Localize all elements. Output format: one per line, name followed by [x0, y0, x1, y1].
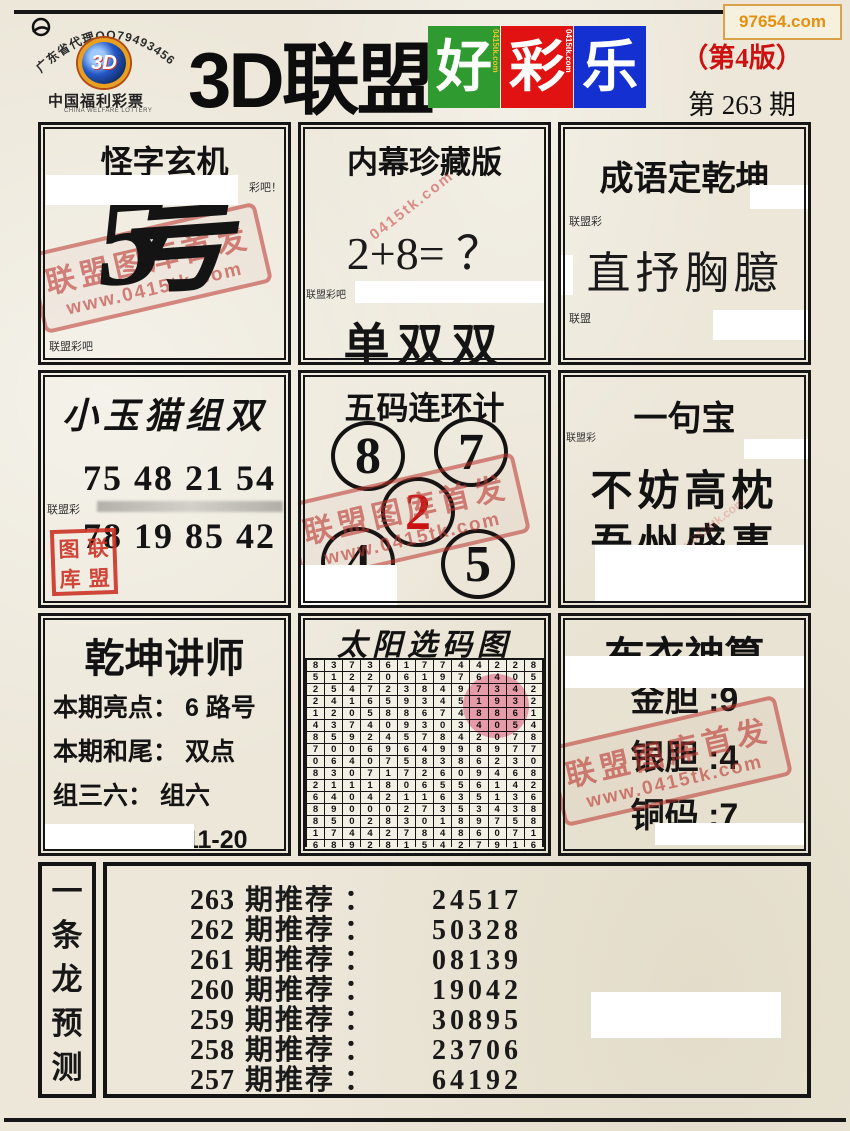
grid-digit: 5 — [398, 732, 415, 743]
grid-digit: 8 — [452, 756, 469, 767]
grid-digit: 8 — [325, 840, 342, 851]
grid-digit: 3 — [325, 852, 342, 856]
grid-digit: 7 — [416, 732, 433, 743]
panel-title: 乾坤讲师 — [41, 626, 288, 684]
grid-digit: 0 — [361, 756, 378, 767]
equation-text: 2+8= ？ — [301, 217, 548, 283]
answer-text: 单双双 — [301, 309, 548, 365]
grid-digit: 7 — [398, 828, 415, 839]
panel-buyi-oracle: 布衣神算 金胆 :9银胆 :4铜码 :7 联盟图库首发 www.0415tk.c… — [558, 613, 811, 856]
vertical-label-char: 测 — [52, 1046, 83, 1090]
dragon-vertical-label: 一条龙预测 — [38, 862, 96, 1098]
grid-digit: 3 — [452, 792, 469, 803]
vertical-label-char: 一 — [52, 870, 83, 914]
grid-digit: 6 — [470, 780, 487, 791]
lottery-name-en: CHINA WELFARE LOTTERY — [64, 108, 152, 114]
grid-digit: 9 — [489, 744, 506, 755]
panel-title: 内幕珍藏版 — [301, 137, 548, 182]
grid-digit: 4 — [525, 720, 542, 731]
grid-digit: 0 — [307, 756, 324, 767]
grid-digit: 1 — [398, 792, 415, 803]
grid-digit: 6 — [525, 792, 542, 803]
grid-digit: 0 — [489, 828, 506, 839]
panel-one-phrase: 一句宝 联盟彩 不妨高枕 吾州盛事 www.0415tk.com — [558, 370, 811, 608]
grid-digit: 8 — [416, 756, 433, 767]
grid-digit: 1 — [434, 816, 451, 827]
grid-digit: 8 — [525, 816, 542, 827]
grid-digit: 2 — [452, 840, 469, 851]
censor-patch — [355, 281, 544, 303]
grid-digit: 4 — [470, 852, 487, 856]
grid-digit: 6 — [434, 792, 451, 803]
grid-digit: 1 — [325, 672, 342, 683]
grid-digit: 2 — [307, 684, 324, 695]
grid-digit: 7 — [361, 684, 378, 695]
grid-digit: 0 — [525, 756, 542, 767]
grid-digit: 1 — [489, 780, 506, 791]
grid-digit: 2 — [307, 780, 324, 791]
grid-digit: 2 — [307, 696, 324, 707]
grid-digit: 1 — [380, 768, 397, 779]
grid-digit: 5 — [307, 672, 324, 683]
censor-patch — [564, 656, 805, 688]
grid-digit: 4 — [452, 852, 469, 856]
grid-digit: 4 — [452, 732, 469, 743]
union-library-seal: 图联库盟 — [50, 528, 118, 596]
grid-digit: 8 — [525, 804, 542, 815]
grid-digit: 1 — [343, 696, 360, 707]
panel-mystery-character: 怪字玄机 彩吧！ 联盟图库首发 www.0415tk.com 5号 联盟彩吧 — [38, 122, 291, 365]
grid-digit: 2 — [325, 708, 342, 719]
grid-digit: 2 — [380, 684, 397, 695]
grid-digit: 0 — [380, 672, 397, 683]
grid-digit: 8 — [307, 804, 324, 815]
brand-color-blocks: 好0415tk.com彩0415tk.com乐 — [428, 26, 647, 108]
vertical-label-char: 条 — [52, 914, 83, 958]
grid-digit: 5 — [380, 696, 397, 707]
grid-digit: 2 — [361, 672, 378, 683]
grid-digit: 8 — [380, 816, 397, 827]
grid-digit: 6 — [470, 756, 487, 767]
grid-digit: 6 — [361, 744, 378, 755]
censor-patch — [46, 175, 238, 205]
grid-digit: 8 — [452, 816, 469, 827]
censor-patch — [750, 185, 808, 209]
grid-digit: 8 — [307, 852, 324, 856]
panel-lecturer: 乾坤讲师 本期亮点： 6 路号本期和尾： 双点组三六： 组六点数范围： 11-2… — [38, 613, 291, 856]
side-note: 联盟彩 — [569, 213, 602, 229]
grid-digit: 7 — [416, 660, 433, 671]
grid-digit: 4 — [434, 696, 451, 707]
grid-digit: 6 — [416, 780, 433, 791]
grid-digit: 4 — [470, 660, 487, 671]
grid-digit: 4 — [416, 744, 433, 755]
censor-patch — [655, 823, 805, 845]
grid-digit: 3 — [507, 792, 524, 803]
grid-digit: 0 — [343, 804, 360, 815]
censor-patch — [595, 545, 806, 601]
censor-patch — [591, 992, 781, 1038]
grid-digit: 0 — [416, 816, 433, 827]
grid-digit: 6 — [380, 852, 397, 856]
tip-line: 本期和尾： 双点 — [53, 732, 235, 768]
grid-digit: 0 — [380, 804, 397, 815]
grid-digit: 4 — [307, 720, 324, 731]
panel-title: 五码连环计 — [301, 383, 548, 429]
grid-digit: 7 — [361, 768, 378, 779]
grid-digit: 2 — [343, 672, 360, 683]
grid-digit: 8 — [307, 768, 324, 779]
grid-digit: 4 — [380, 732, 397, 743]
grid-digit: 9 — [325, 804, 342, 815]
grid-digit: 1 — [343, 780, 360, 791]
grid-digit: 3 — [434, 756, 451, 767]
grid-digit: 7 — [434, 708, 451, 719]
grid-digit: 7 — [380, 756, 397, 767]
grid-digit: 7 — [343, 660, 360, 671]
grid-digit: 4 — [325, 696, 342, 707]
grid-digit: 7 — [325, 828, 342, 839]
grid-digit: 7 — [307, 744, 324, 755]
grid-digit: 1 — [416, 792, 433, 803]
grid-digit: 9 — [434, 744, 451, 755]
grid-digit: 4 — [434, 684, 451, 695]
grid-digit: 7 — [343, 852, 360, 856]
grid-digit: 7 — [489, 816, 506, 827]
grid-digit: 6 — [398, 744, 415, 755]
grid-digit: 0 — [343, 708, 360, 719]
grid-digit: 8 — [416, 828, 433, 839]
grid-digit: 2 — [507, 852, 524, 856]
grid-digit: 0 — [434, 720, 451, 731]
grid-digit: 7 — [343, 720, 360, 731]
grid-digit: 5 — [452, 804, 469, 815]
page-frame-bottom — [4, 1118, 846, 1122]
blurred-strip — [97, 501, 283, 512]
grid-digit: 7 — [470, 840, 487, 851]
grid-digit: 3 — [361, 660, 378, 671]
grid-digit: 6 — [398, 672, 415, 683]
grid-digit: 3 — [325, 660, 342, 671]
grid-digit: 8 — [470, 744, 487, 755]
dragon-list: 263期推荐 ：24517262期推荐 ：50328261期推荐 ：081392… — [103, 862, 811, 1098]
lottery-3d-ball-icon: 3D — [78, 38, 130, 88]
lottery-tip-sheet: 97654.com 广东省代理QQ79493456 3D 中国福利彩票 CHIN… — [0, 0, 850, 1131]
grid-digit: 4 — [343, 828, 360, 839]
grid-digit: 4 — [452, 660, 469, 671]
brand-block: 彩0415tk.com — [501, 26, 573, 108]
grid-digit: 8 — [452, 828, 469, 839]
grid-digit: 2 — [489, 756, 506, 767]
grid-digit: 3 — [398, 816, 415, 827]
grid-digit: 1 — [416, 672, 433, 683]
grid-digit: 3 — [416, 720, 433, 731]
grid-digit: 6 — [507, 768, 524, 779]
grid-digit: 6 — [361, 696, 378, 707]
grid-digit: 7 — [452, 672, 469, 683]
panel-five-code-rings: 五码连环计 87245 联盟图库首发 www.0415tk.com — [298, 370, 551, 608]
grid-digit: 7 — [398, 768, 415, 779]
dragon-rows: 263期推荐 ：24517262期推荐 ：50328261期推荐 ：081392… — [173, 878, 807, 1088]
grid-digit: 8 — [380, 840, 397, 851]
vertical-label-char: 龙 — [52, 958, 83, 1002]
grid-digit: 4 — [507, 780, 524, 791]
grid-digit: 0 — [343, 768, 360, 779]
footer-note: 联盟 — [569, 310, 591, 326]
grid-digit: 1 — [507, 840, 524, 851]
grid-digit: 2 — [380, 792, 397, 803]
grid-digit: 1 — [398, 660, 415, 671]
main-title: 3D联盟 — [188, 18, 432, 130]
grid-digit: 3 — [507, 804, 524, 815]
grid-digit: 8 — [525, 660, 542, 671]
grid-digit: 3 — [507, 756, 524, 767]
grid-digit: 3 — [398, 684, 415, 695]
grid-digit: 1 — [525, 828, 542, 839]
grid-digit: 9 — [470, 816, 487, 827]
grid-digit: 4 — [325, 792, 342, 803]
grid-digit: 5 — [325, 816, 342, 827]
grid-digit: 4 — [489, 768, 506, 779]
site-url-badge: 97654.com — [723, 4, 842, 40]
grid-digit: 7 — [434, 660, 451, 671]
idiom-text: 直抒胸臆 — [561, 237, 808, 301]
grid-digit: 6 — [307, 792, 324, 803]
vertical-label-char: 预 — [52, 1002, 83, 1046]
panel-insider-collection: 内幕珍藏版 0415tk.com 2+8= ？ 联盟彩吧 单双双 — [298, 122, 551, 365]
grid-digit: 2 — [380, 828, 397, 839]
grid-digit: 0 — [361, 804, 378, 815]
side-note: 联盟彩 — [47, 501, 80, 517]
grid-digit: 5 — [416, 840, 433, 851]
panel-idiom: 成语定乾坤 联盟彩 直抒胸臆 联盟 — [558, 122, 811, 365]
grid-digit: 7 — [507, 744, 524, 755]
welfare-lottery-logo: 广东省代理QQ79493456 3D 中国福利彩票 CHINA WELFARE … — [30, 16, 190, 112]
grid-digit: 5 — [361, 708, 378, 719]
grid-digit: 1 — [307, 828, 324, 839]
grid-digit: 0 — [398, 780, 415, 791]
grid-digit: 5 — [452, 780, 469, 791]
grid-digit: 0 — [452, 768, 469, 779]
tip-line: 本期亮点： 6 路号 — [53, 688, 256, 724]
grid-digit: 7 — [434, 852, 451, 856]
grid-digit: 1 — [398, 852, 415, 856]
grid-digit: 0 — [343, 816, 360, 827]
grid-digit: 8 — [416, 684, 433, 695]
panel-grid: 怪字玄机 彩吧！ 联盟图库首发 www.0415tk.com 5号 联盟彩吧 内… — [38, 122, 811, 856]
brand-block: 好0415tk.com — [428, 26, 500, 108]
grid-digit: 8 — [307, 660, 324, 671]
grid-digit: 6 — [434, 768, 451, 779]
grid-digit: 2 — [361, 732, 378, 743]
grid-digit: 2 — [416, 768, 433, 779]
grid-digit: 1 — [489, 792, 506, 803]
grid-digit: 8 — [307, 732, 324, 743]
cwl-emblem-icon — [30, 16, 52, 38]
grid-digit: 6 — [470, 828, 487, 839]
phrase-line: 不妨高枕 — [561, 457, 808, 518]
grid-digit: 7 — [416, 804, 433, 815]
grid-digit: 5 — [325, 684, 342, 695]
grid-digit: 5 — [507, 816, 524, 827]
grid-digit: 2 — [489, 660, 506, 671]
grid-digit: 2 — [398, 804, 415, 815]
grid-digit: 2 — [507, 660, 524, 671]
censor-patch — [561, 255, 573, 295]
grid-digit: 8 — [380, 780, 397, 791]
brand-block: 乐 — [574, 26, 646, 108]
grid-digit: 8 — [380, 708, 397, 719]
panel-dragon-predictions: 一条龙预测 263期推荐 ：24517262期推荐 ：50328261期推荐 ：… — [38, 862, 811, 1098]
grid-digit: 2 — [525, 780, 542, 791]
grid-digit: 9 — [380, 744, 397, 755]
grid-digit: 4 — [489, 804, 506, 815]
grid-digit: 8 — [398, 708, 415, 719]
grid-digit: 6 — [307, 840, 324, 851]
grid-digit: 4 — [361, 792, 378, 803]
grid-digit: 8 — [525, 732, 542, 743]
grid-digit: 4 — [361, 720, 378, 731]
grid-digit: 9 — [470, 768, 487, 779]
grid-digit: 5 — [325, 732, 342, 743]
grid-digit: 2 — [361, 840, 378, 851]
grid-digit: 4 — [361, 828, 378, 839]
grid-digit: 3 — [361, 852, 378, 856]
grid-digit: 2 — [361, 816, 378, 827]
grid-digit: 0 — [325, 744, 342, 755]
corner-note: 彩吧！ — [249, 179, 282, 195]
grid-digit: 5 — [398, 756, 415, 767]
issue-number: 第 263 期 — [662, 83, 822, 122]
censor-patch — [44, 824, 194, 850]
side-note: 联盟彩吧 — [306, 286, 346, 301]
panel-title: 一句宝 — [561, 391, 808, 440]
tip-line: 组三六： 组六 — [53, 776, 210, 812]
pink-highlight-circle — [463, 674, 529, 738]
panel-xiaoyumao-pairs: 小玉猫组双 75 48 21 54 联盟彩 78 19 85 42 图联库盟 — [38, 370, 291, 608]
grid-digit: 8 — [525, 852, 542, 856]
grid-digit: 5 — [470, 792, 487, 803]
grid-digit: 9 — [343, 840, 360, 851]
grid-digit: 7 — [525, 744, 542, 755]
grid-digit: 3 — [325, 720, 342, 731]
grid-digit: 3 — [434, 804, 451, 815]
censor-patch — [744, 439, 808, 459]
grid-digit: 5 — [434, 780, 451, 791]
grid-digit: 2 — [489, 852, 506, 856]
censor-patch — [301, 565, 397, 605]
side-note: 联盟彩 — [566, 429, 596, 444]
grid-digit: 6 — [525, 840, 542, 851]
grid-digit: 2 — [525, 684, 542, 695]
grid-digit: 1 — [307, 708, 324, 719]
grid-digit: 0 — [380, 720, 397, 731]
grid-digit: 1 — [398, 840, 415, 851]
grid-digit: 7 — [416, 852, 433, 856]
censor-patch — [713, 310, 808, 340]
edition-info: （第4版） 第 263 期 — [662, 36, 822, 122]
grid-digit: 9 — [398, 720, 415, 731]
grid-digit: 4 — [343, 756, 360, 767]
grid-digit: 3 — [325, 768, 342, 779]
prediction-row: 263期推荐 ：24517 — [173, 878, 807, 908]
panel-title: 小玉猫组双 — [41, 387, 288, 439]
grid-digit: 0 — [343, 792, 360, 803]
grid-digit: 9 — [398, 696, 415, 707]
grid-digit: 3 — [416, 696, 433, 707]
grid-digit: 4 — [343, 684, 360, 695]
grid-digit: 8 — [307, 816, 324, 827]
grid-digit: 4 — [434, 840, 451, 851]
grid-digit: 1 — [325, 780, 342, 791]
panel-sun-code-chart: 太阳选码图 8373617744228512206197640525472384… — [298, 613, 551, 856]
grid-digit: 8 — [434, 732, 451, 743]
edition-number: （第4版） — [662, 36, 822, 75]
grid-digit: 7 — [507, 828, 524, 839]
grid-digit: 6 — [325, 756, 342, 767]
grid-digit: 3 — [470, 804, 487, 815]
grid-digit: 6 — [416, 708, 433, 719]
grid-digit: 9 — [452, 744, 469, 755]
grid-digit: 8 — [525, 768, 542, 779]
grid-digit: 1 — [361, 780, 378, 791]
grid-digit: 9 — [343, 732, 360, 743]
number-row: 75 48 21 54 — [71, 457, 288, 499]
grid-digit: 9 — [489, 840, 506, 851]
grid-digit: 4 — [434, 828, 451, 839]
grid-digit: 9 — [434, 672, 451, 683]
grid-digit: 6 — [380, 660, 397, 671]
grid-digit: 0 — [343, 744, 360, 755]
grid-digit: 5 — [525, 672, 542, 683]
footer-note: 联盟彩吧 — [49, 338, 93, 354]
